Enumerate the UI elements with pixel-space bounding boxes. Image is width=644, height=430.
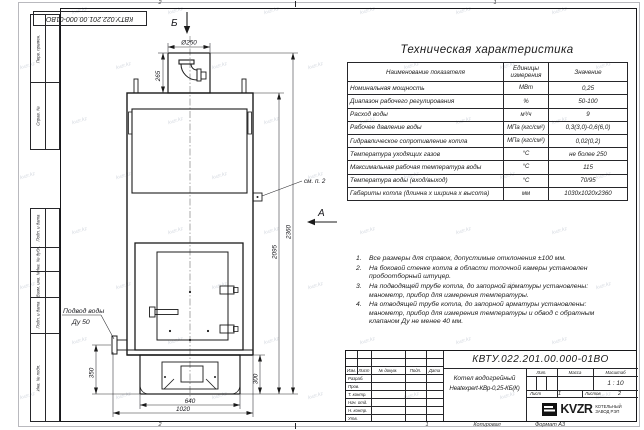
grid-line: [582, 390, 583, 397]
side-cell-label: Инв. № подл.: [36, 365, 41, 392]
side-cell-podp-data: Подп. и дата: [31, 209, 45, 247]
side-cell-label: Инв. № дубл.: [36, 246, 41, 272]
dimension-lines: [62, 43, 302, 417]
side-cell-perv-primen: Перв. примен.: [31, 15, 45, 82]
row-value: 115: [549, 161, 628, 174]
product-name-line2: Heatexpert-КВр-0,25-КБ(К): [443, 384, 526, 394]
table-row: Габариты котла (длинна х ширина х высота…: [348, 187, 628, 200]
company-cell: KVZR КОТЕЛЬНЫЙ ЗАВОД РЭП: [526, 397, 638, 421]
spec-col-name: Наименование показателя: [348, 63, 504, 82]
sheets-label: Листов: [585, 391, 601, 396]
see-note-callout: см. п. 2: [304, 178, 326, 185]
row-name: Температура уходящих газов: [348, 148, 504, 161]
side-cell-label: Перв. примен.: [36, 34, 41, 63]
dim-body-width: 1020: [176, 406, 191, 413]
spec-table: Наименование показателя Единицы измерени…: [347, 62, 628, 201]
side-cell-vzam-inv: Взам. инв. №: [31, 271, 45, 297]
row-name: Температура воды (вход/выход): [348, 174, 504, 187]
lit-label: Лит.: [526, 368, 557, 376]
dim-chimney-height: 265: [155, 70, 162, 82]
spec-col-value: Значение: [549, 63, 628, 82]
table-row: Температура воды (вход/выход)°С70/95: [348, 174, 628, 187]
table-row: Номинальная мощностьМВт0,25: [348, 82, 628, 95]
row-prov: Пров.: [348, 384, 376, 389]
product-name-line1: Котел водогрейный: [443, 374, 526, 384]
spec-header-row: Наименование показателя Единицы измерени…: [348, 63, 628, 82]
grid-line: [405, 351, 406, 421]
grid-line: [536, 376, 537, 390]
water-inlet-label: Подвод воды: [63, 307, 104, 315]
side-cell-podp-data2: Подп. и дата: [31, 297, 45, 333]
row-name: Диапазон рабочего регулирования: [348, 95, 504, 108]
spec-col-unit: Единицы измерения: [504, 63, 549, 82]
row-nachotd: Нач. отд.: [348, 400, 376, 405]
notes-list: Все размеры для справок, допустимые откл…: [356, 255, 618, 328]
note-item: На боковой стенке котла в области топочн…: [356, 265, 618, 282]
row-utv: Утв.: [348, 416, 376, 421]
row-name: Максимальная рабочая температура воды: [348, 161, 504, 174]
side-cell-label: Взам. инв. №: [36, 271, 41, 298]
row-value: 50-100: [549, 95, 628, 108]
chimney-elbow: [181, 64, 197, 80]
sheet-value: 1: [558, 391, 561, 397]
zone-tick: [295, 423, 296, 429]
zone-label: 2: [154, 0, 166, 6]
water-inlet-flange: [112, 336, 117, 354]
side-cell-label: Справ. №: [36, 106, 41, 126]
table-row: Диапазон рабочего регулирования%50-100: [348, 95, 628, 108]
row-unit: %: [504, 95, 549, 108]
side-cell-label: Подп. и дата: [36, 302, 41, 329]
note-item: На подводящей трубе котла, до запорной а…: [356, 283, 618, 300]
dim-chimney-diameter: Ø250: [180, 40, 197, 47]
top-lug-right: [242, 79, 246, 93]
zone-tick: [295, 1, 296, 7]
chimney-box: [168, 53, 210, 93]
row-unit: МПа (кгс/см²): [504, 135, 549, 148]
panel-bracket-right: [248, 112, 252, 134]
table-row: Максимальная рабочая температура воды°С1…: [348, 161, 628, 174]
row-value: 1030х1020х2360: [549, 187, 628, 200]
kvzr-logo-icon: [542, 403, 557, 416]
row-unit: мм: [504, 187, 549, 200]
col-data: Дата: [426, 366, 443, 374]
row-value: 0,25: [549, 82, 628, 95]
elbow-stub: [201, 72, 206, 79]
row-unit: МПа (кгс/см²): [504, 121, 549, 134]
water-inlet-dn: Ду 50: [71, 319, 90, 326]
row-name: Номинальная мощность: [348, 82, 504, 95]
note-item: На отводящей трубе котла, до запорной ар…: [356, 301, 618, 327]
grid-line: [346, 358, 443, 359]
top-lug-left: [134, 79, 138, 93]
row-nkontr: Н. контр.: [348, 408, 376, 413]
view-b-arrow: [184, 26, 190, 34]
col-izm: Изм.: [346, 366, 357, 374]
table-row: Рабочее давление водыМПа (кгс/см²)0,3(3,…: [348, 121, 628, 134]
boiler-general-view: Б А Ø250 265 2095 2360 350 300 640 1020 …: [60, 8, 345, 422]
row-name: Расход воды: [348, 108, 504, 121]
door-handle: [155, 310, 178, 315]
grid-line: [426, 351, 427, 421]
row-name: Гидравлическое сопротивление котла: [348, 135, 504, 148]
side-cell-inv-podl: Инв. № подл.: [31, 333, 45, 423]
side-column-bottom-group: Подп. и дата Инв. № дубл. Взам. инв. № П…: [30, 208, 60, 422]
row-unit: МВт: [504, 82, 549, 95]
grid-line: [546, 376, 547, 390]
row-unit: °С: [504, 148, 549, 161]
zone-label: 1: [489, 0, 501, 6]
table-row: Температура уходящих газов°Сне более 250: [348, 148, 628, 161]
view-b-label: Б: [171, 18, 178, 29]
scale-label: Масштаб: [593, 368, 638, 376]
scale-value: 1 : 10: [593, 376, 638, 390]
row-tkontr: Т. контр.: [348, 392, 376, 397]
brand-name: KVZR: [560, 402, 592, 416]
row-value: 70/95: [549, 174, 628, 187]
row-value: 9: [549, 108, 628, 121]
col-list: Лист: [357, 366, 371, 374]
side-column-top-group: Перв. примен. Справ. №: [30, 14, 60, 150]
elbow-flange: [197, 69, 201, 81]
row-name: Габариты котла (длинна х ширина х высота…: [348, 187, 504, 200]
mass-label: Масса: [557, 368, 593, 376]
row-value: не более 250: [549, 148, 628, 161]
format-label: Формат А3: [518, 422, 582, 428]
view-a-label: А: [317, 208, 325, 219]
door-inner-panel: [157, 252, 228, 340]
col-ndocum: № докум.: [371, 366, 405, 374]
door-handle-mount: [150, 307, 156, 317]
furnace-door: [135, 243, 243, 350]
water-inlet-pipe: [117, 340, 127, 350]
row-name: Рабочее давление воды: [348, 121, 504, 134]
zone-label: 2: [154, 422, 166, 428]
doc-number: КВТУ.022.201.00.000-01ВО: [443, 351, 638, 368]
row-value: 0,3(3,0)-0,6(6,0): [549, 121, 628, 134]
spec-table-title: Техническая характеристика: [347, 42, 627, 58]
brand-sub2: ЗАВОД РЭП: [595, 409, 621, 414]
row-razrab: Разраб.: [348, 376, 376, 381]
row-unit: °С: [504, 174, 549, 187]
col-podp: Подп.: [405, 366, 426, 374]
dim-total-height: 2360: [286, 225, 293, 241]
chimney-elbow-rim: [179, 60, 194, 64]
sheets-value: 2: [618, 391, 621, 397]
dim-body-height: 2095: [272, 245, 279, 261]
side-cell-sprav: Справ. №: [31, 82, 45, 149]
row-unit: м³/ч: [504, 108, 549, 121]
door-hinge-bottom: [220, 325, 234, 333]
door-hinge-top: [220, 286, 234, 294]
copy-label: Копировал: [455, 422, 519, 428]
row-value: 0,02(0,2): [549, 135, 628, 148]
dim-left-height: 350: [89, 367, 96, 378]
boiler-outline: [112, 12, 337, 394]
dim-base-height: 300: [253, 373, 260, 384]
sheet-label: Лист: [530, 391, 541, 396]
grid-line: [45, 209, 46, 421]
note-item: Все размеры для справок, допустимые откл…: [356, 255, 618, 264]
base-damper: [181, 366, 203, 382]
title-block: Изм. Лист № докум. Подп. Дата Разраб. Пр…: [345, 350, 637, 422]
side-cell-label: Подп. и дата: [36, 215, 41, 242]
zone-label: 1: [421, 422, 433, 428]
upper-panel: [132, 109, 247, 193]
table-row: Расход водым³/ч9: [348, 108, 628, 121]
dim-base-width: 640: [185, 398, 196, 405]
side-cell-inv-dubl: Инв. № дубл.: [31, 247, 45, 271]
table-row: Гидравлическое сопротивление котлаМПа (к…: [348, 135, 628, 148]
view-a-arrow: [307, 219, 315, 225]
product-name-cell: Котел водогрейный Heatexpert-КВр-0,25-КБ…: [443, 368, 526, 421]
drawing-sheet: kvzr.kzkvzr.kzkvzr.kzkvzr.kzkvzr.kzkvzr.…: [0, 0, 644, 430]
row-unit: °С: [504, 161, 549, 174]
